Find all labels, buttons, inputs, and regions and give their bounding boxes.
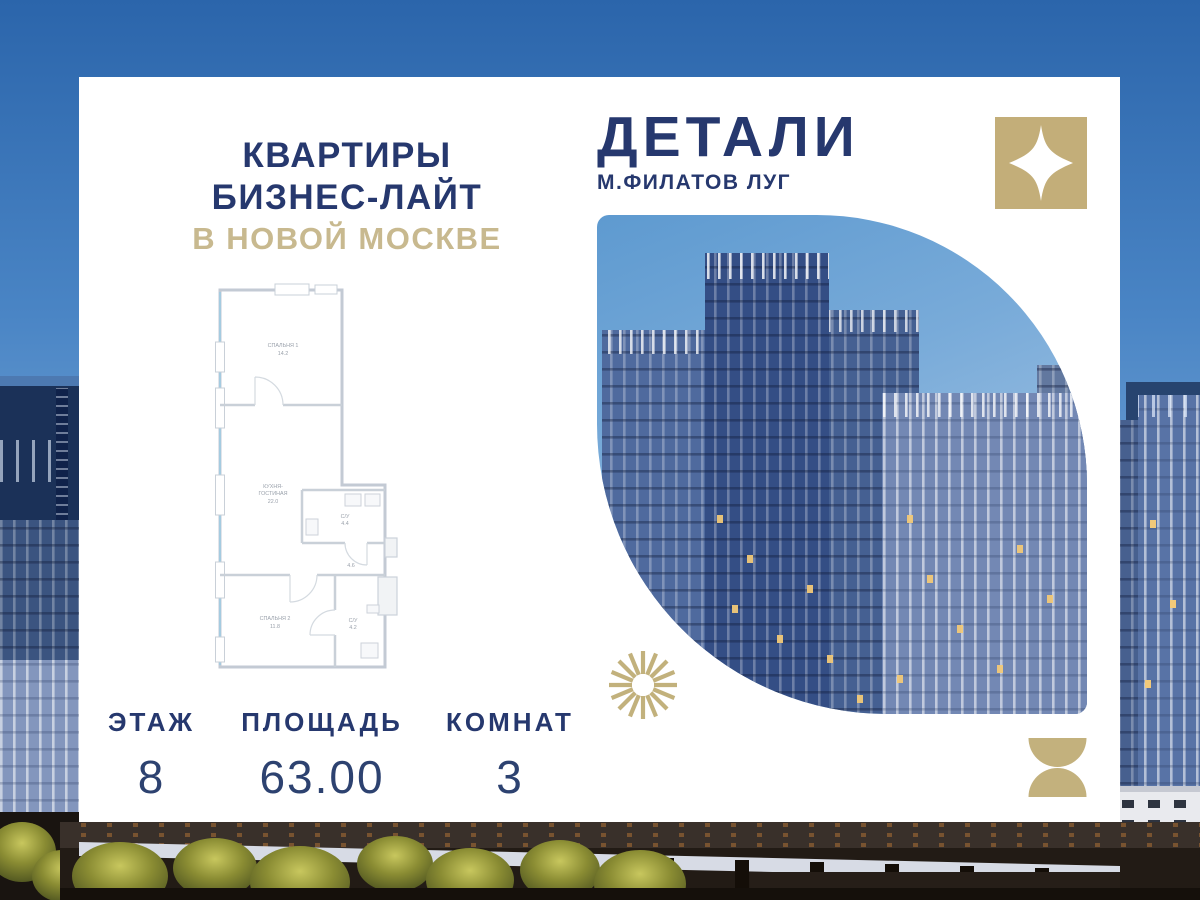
room-area: 4.2: [349, 625, 357, 631]
room-label: С/У: [349, 618, 358, 624]
floor-plan-walls: [216, 284, 398, 667]
sunburst-icon: [606, 648, 680, 722]
headline-line1: КВАРТИРЫ: [117, 135, 577, 177]
room-area: 4.4: [341, 521, 349, 527]
room-label: КУХНЯ-: [263, 484, 283, 490]
photo-scene: [597, 215, 1087, 714]
room-label: СПАЛЬНЯ 2: [260, 616, 291, 622]
headline: КВАРТИРЫ БИЗНЕС-ЛАЙТ В НОВОЙ МОСКВЕ: [117, 135, 577, 259]
stat-rooms-label: КОМНАТ: [420, 707, 600, 738]
stat-rooms-value: 3: [420, 750, 600, 804]
brand-location: М.ФИЛАТОВ ЛУГ: [597, 171, 860, 195]
room-label: С/У: [341, 514, 350, 520]
sparkle-star-icon: [995, 117, 1087, 209]
headline-line3: В НОВОЙ МОСКВЕ: [117, 219, 577, 259]
stat-area: ПЛОЩАДЬ 63.00: [222, 707, 422, 804]
room-label: ГОСТИНАЯ: [258, 491, 287, 497]
bg-bottom-strip: [60, 822, 1200, 900]
listing-card: КВАРТИРЫ БИЗНЕС-ЛАЙТ В НОВОЙ МОСКВЕ ДЕТА…: [79, 77, 1120, 822]
room-area: 11.8: [270, 624, 280, 630]
stat-floor: ЭТАЖ 8: [89, 707, 214, 804]
stat-floor-value: 8: [89, 750, 214, 804]
project-photo: [597, 215, 1087, 714]
stat-area-value: 63.00: [222, 750, 422, 804]
stat-rooms: КОМНАТ 3: [420, 707, 600, 804]
stat-area-label: ПЛОЩАДЬ: [222, 707, 422, 738]
room-area: 14.2: [278, 351, 289, 357]
room-label: СПАЛЬНЯ 1: [268, 343, 299, 349]
floor-plan: СПАЛЬНЯ 1 14.2 КУХНЯ- ГОСТИНАЯ 22.0 С/У …: [195, 275, 400, 685]
brand-name: ДЕТАЛИ: [597, 107, 860, 167]
room-area: 22.0: [268, 499, 279, 505]
stat-floor-label: ЭТАЖ: [89, 707, 214, 738]
hourglass-icon: [1028, 738, 1087, 797]
brand-block: ДЕТАЛИ М.ФИЛАТОВ ЛУГ: [597, 107, 860, 195]
headline-line2: БИЗНЕС-ЛАЙТ: [117, 177, 577, 219]
room-area: 4.6: [347, 563, 355, 569]
